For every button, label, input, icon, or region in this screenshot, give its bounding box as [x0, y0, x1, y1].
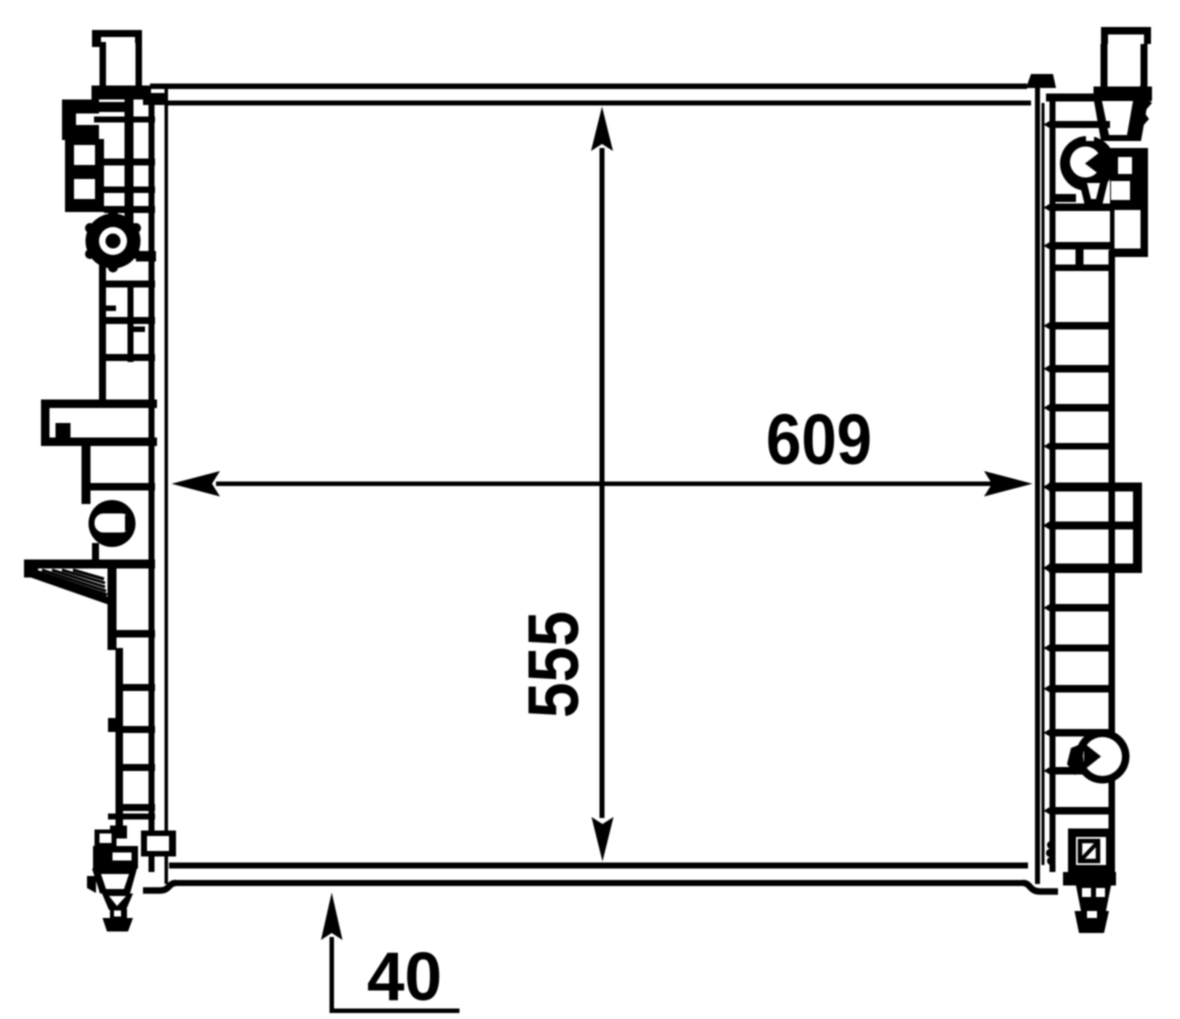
svg-text:40: 40	[367, 938, 442, 1015]
svg-text:555: 555	[515, 611, 594, 718]
svg-text:609: 609	[766, 401, 872, 480]
